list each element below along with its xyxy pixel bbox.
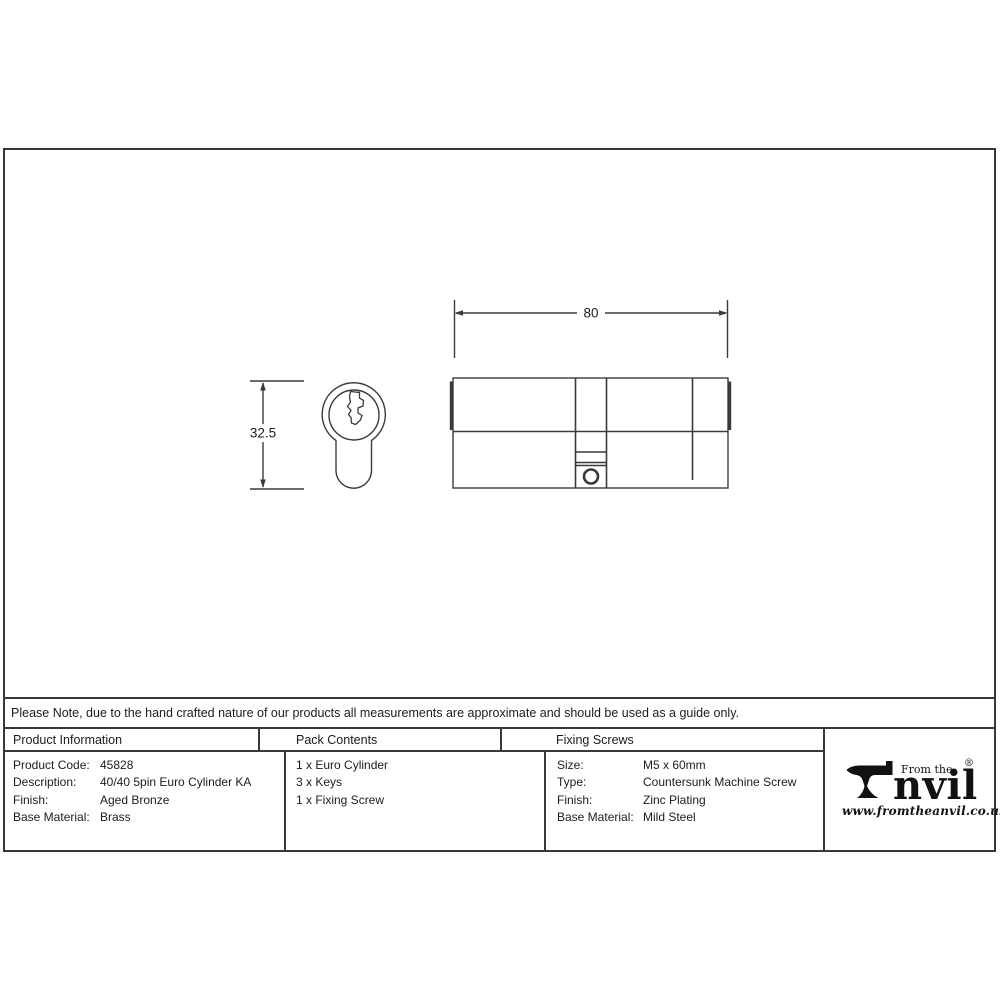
fixing-screws-header: Fixing Screws bbox=[556, 733, 634, 747]
pack-item: 1 x Fixing Screw bbox=[296, 792, 388, 809]
note-row-top-border bbox=[3, 697, 996, 699]
base-material-value: Brass bbox=[100, 809, 251, 826]
side-view-left-tab bbox=[450, 382, 453, 431]
size-value: M5 x 60mm bbox=[643, 757, 796, 774]
product-code-value: 45828 bbox=[100, 757, 251, 774]
type-label: Type: bbox=[557, 774, 634, 791]
fixing-screws-values: M5 x 60mm Countersunk Machine Screw Zinc… bbox=[643, 757, 796, 826]
header-divider-2 bbox=[500, 729, 502, 750]
product-information-header: Product Information bbox=[13, 733, 122, 747]
screw-finish-value: Zinc Plating bbox=[643, 792, 796, 809]
body-divider-1 bbox=[284, 752, 286, 850]
logo-cell-divider bbox=[823, 729, 825, 850]
height-dim-arrow-down bbox=[260, 480, 266, 489]
product-information-values: 45828 40/40 5pin Euro Cylinder KA Aged B… bbox=[100, 757, 251, 826]
finish-value: Aged Bronze bbox=[100, 792, 251, 809]
technical-drawing: 80 32.5 bbox=[0, 148, 1000, 698]
height-dim-label: 32.5 bbox=[250, 426, 276, 441]
logo-wordmark: nvil bbox=[893, 766, 978, 806]
front-view-inner-circle bbox=[329, 390, 379, 440]
product-code-label: Product Code: bbox=[13, 757, 90, 774]
base-material-label: Base Material: bbox=[13, 809, 90, 826]
pack-contents-header: Pack Contents bbox=[296, 733, 377, 747]
anvil-icon bbox=[846, 760, 898, 802]
registered-trademark-icon: ® bbox=[964, 758, 974, 769]
fixing-screws-labels: Size: Type: Finish: Base Material: bbox=[557, 757, 634, 826]
product-information-labels: Product Code: Description: Finish: Base … bbox=[13, 757, 90, 826]
description-value: 40/40 5pin Euro Cylinder KA bbox=[100, 774, 251, 791]
side-view-body bbox=[453, 378, 728, 488]
height-dim-arrow-up bbox=[260, 382, 266, 391]
pack-item: 3 x Keys bbox=[296, 774, 388, 791]
screw-base-material-value: Mild Steel bbox=[643, 809, 796, 826]
width-dim-arrow-left bbox=[455, 310, 464, 315]
front-view-outline bbox=[322, 383, 385, 488]
spec-sheet-page: { "colors": { "line": "#383838", "text":… bbox=[0, 0, 1000, 1000]
screw-finish-label: Finish: bbox=[557, 792, 634, 809]
note-text: Please Note, due to the hand crafted nat… bbox=[11, 706, 739, 720]
pack-item: 1 x Euro Cylinder bbox=[296, 757, 388, 774]
logo-website: www.fromtheanvil.co.uk bbox=[842, 804, 1000, 818]
side-view-right-tab bbox=[728, 382, 731, 431]
size-label: Size: bbox=[557, 757, 634, 774]
keyhole-icon bbox=[348, 392, 364, 425]
pack-contents-list: 1 x Euro Cylinder 3 x Keys 1 x Fixing Sc… bbox=[296, 757, 388, 809]
description-label: Description: bbox=[13, 774, 90, 791]
header-divider-1 bbox=[258, 729, 260, 750]
header-bottom-border bbox=[3, 750, 825, 752]
finish-label: Finish: bbox=[13, 792, 90, 809]
width-dim-label: 80 bbox=[583, 306, 598, 321]
screw-base-material-label: Base Material: bbox=[557, 809, 634, 826]
width-dim-arrow-right bbox=[719, 310, 728, 315]
body-divider-2 bbox=[544, 752, 546, 850]
type-value: Countersunk Machine Screw bbox=[643, 774, 796, 791]
cam-fixing-hole bbox=[584, 470, 598, 484]
